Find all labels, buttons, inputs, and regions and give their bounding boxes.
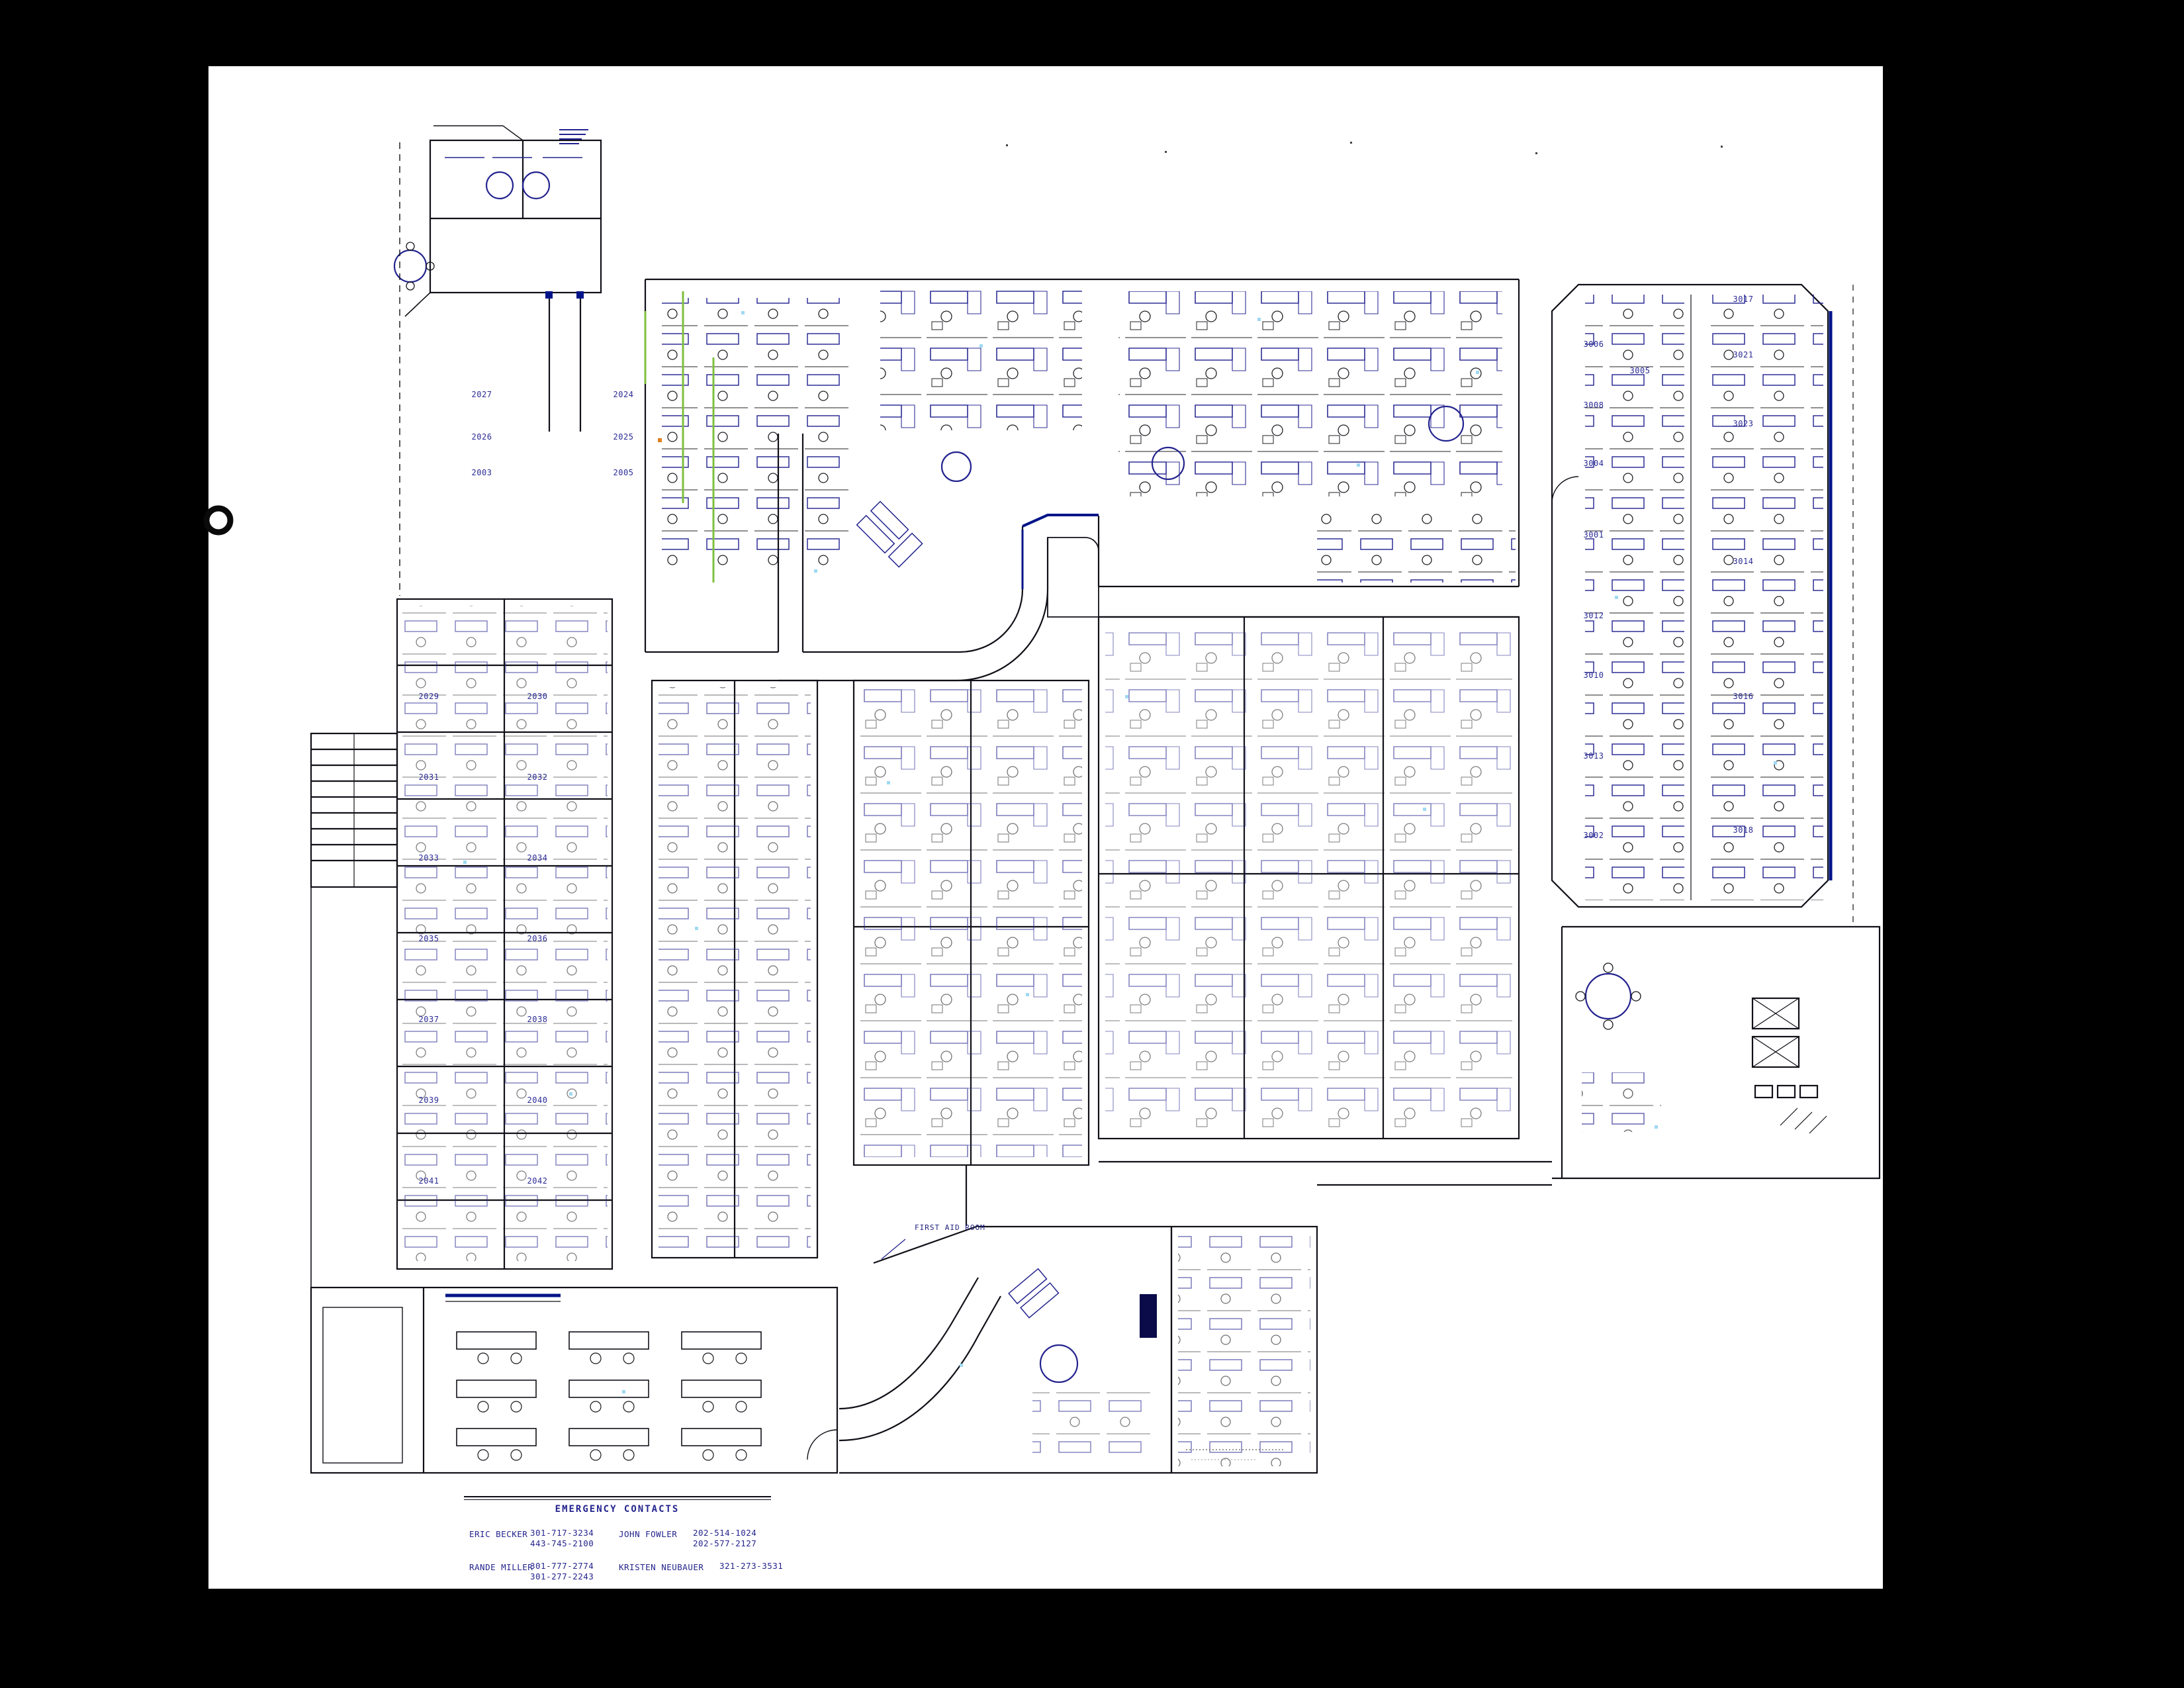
contact-name: ERIC BECKER bbox=[469, 1529, 527, 1539]
contact-phone: 301-717-3234 bbox=[530, 1528, 594, 1538]
center-right-bank bbox=[1099, 617, 1552, 1185]
contact-name: KRISTEN NEUBAUER bbox=[619, 1562, 717, 1572]
contact-name: JOHN FOWLER bbox=[619, 1529, 688, 1539]
first-aid-room-label: FIRST AID ROOM bbox=[915, 1223, 985, 1232]
orange-speck bbox=[658, 438, 662, 442]
contact-phone: 301-277-2243 bbox=[530, 1571, 594, 1582]
legend-rule bbox=[464, 1496, 771, 1500]
hole-punch bbox=[206, 508, 230, 532]
left-cubicle-bank bbox=[397, 599, 612, 1269]
scanned-drawing-page: 2027202420262025200320052029203020312032… bbox=[0, 0, 2184, 1688]
emergency-contacts-legend: EMERGENCY CONTACTS ERIC BECKER 301-717-3… bbox=[460, 1488, 774, 1587]
contact-phone: 443-745-2100 bbox=[530, 1538, 594, 1549]
mid-left-bank bbox=[652, 680, 817, 1258]
contact-phone: 321-273-3531 bbox=[719, 1561, 783, 1571]
legend-title: EMERGENCY CONTACTS bbox=[460, 1504, 774, 1515]
contact-phone: 202-577-2127 bbox=[693, 1538, 756, 1549]
contact-phone: 301-777-2774 bbox=[530, 1561, 594, 1571]
contact-name: RANDE MILLER bbox=[469, 1562, 527, 1572]
floor-plan-canvas bbox=[0, 0, 2184, 1688]
contact-phone: 202-514-1024 bbox=[693, 1528, 756, 1538]
